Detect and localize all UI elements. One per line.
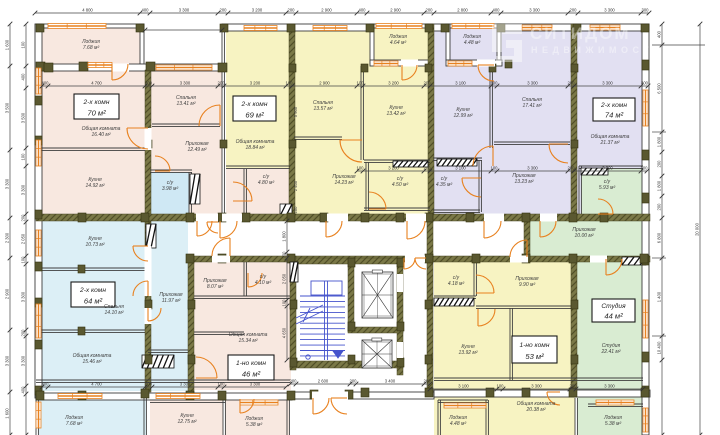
- svg-text:2-х комн: 2-х комн: [600, 102, 627, 109]
- svg-text:10.00 м²: 10.00 м²: [575, 233, 594, 239]
- svg-text:3 300: 3 300: [602, 165, 613, 170]
- svg-text:20.38 м²: 20.38 м²: [526, 407, 546, 413]
- svg-text:2-х комн: 2-х комн: [79, 287, 106, 294]
- svg-text:2 400: 2 400: [293, 180, 298, 191]
- svg-text:4 800: 4 800: [82, 7, 93, 12]
- svg-text:7.68 м²: 7.68 м²: [83, 45, 100, 51]
- svg-text:СИТИДОМ: СИТИДОМ: [530, 24, 631, 43]
- svg-text:3 200: 3 200: [252, 7, 263, 12]
- svg-text:100: 100: [286, 80, 294, 85]
- svg-text:2 300: 2 300: [4, 232, 9, 243]
- svg-text:14.92 м²: 14.92 м²: [86, 183, 105, 189]
- svg-text:200: 200: [20, 329, 25, 337]
- svg-text:400: 400: [20, 386, 25, 394]
- svg-text:2 600: 2 600: [318, 378, 329, 383]
- svg-text:13.41 м²: 13.41 м²: [177, 101, 196, 107]
- svg-text:400: 400: [359, 7, 367, 12]
- svg-text:3 500: 3 500: [20, 112, 25, 123]
- svg-text:200: 200: [350, 378, 358, 383]
- svg-text:16.40 м²: 16.40 м²: [92, 132, 111, 138]
- svg-text:9.90 м²: 9.90 м²: [519, 282, 536, 288]
- svg-text:200: 200: [281, 251, 286, 259]
- svg-text:400: 400: [20, 73, 25, 81]
- svg-text:3 100: 3 100: [455, 165, 466, 170]
- svg-text:3 300: 3 300: [20, 184, 25, 195]
- svg-text:44 м²: 44 м²: [604, 312, 623, 321]
- svg-text:300: 300: [641, 80, 649, 85]
- svg-text:100: 100: [20, 41, 25, 49]
- svg-text:НЕДВИЖИМОСТЬ: НЕДВИЖИМОСТЬ: [531, 45, 664, 55]
- svg-text:69 м²: 69 м²: [245, 110, 264, 119]
- svg-text:3 300: 3 300: [604, 7, 615, 12]
- svg-text:3 300: 3 300: [527, 165, 538, 170]
- svg-text:200: 200: [290, 378, 298, 383]
- svg-text:3 200: 3 200: [388, 165, 399, 170]
- svg-text:400: 400: [493, 7, 501, 12]
- svg-text:100: 100: [218, 381, 226, 386]
- svg-text:15.34 м²: 15.34 м²: [239, 338, 258, 344]
- svg-text:6 500: 6 500: [656, 83, 661, 94]
- svg-text:3 300: 3 300: [4, 178, 9, 189]
- svg-text:200: 200: [656, 160, 661, 168]
- svg-text:400: 400: [42, 381, 50, 386]
- svg-text:3 300: 3 300: [527, 80, 538, 85]
- svg-text:4.48 м²: 4.48 м²: [450, 421, 467, 427]
- svg-text:400: 400: [656, 30, 661, 38]
- svg-text:1 600: 1 600: [4, 39, 9, 50]
- svg-text:3 300: 3 300: [250, 381, 261, 386]
- svg-text:64 м²: 64 м²: [84, 296, 103, 305]
- svg-text:21.37 м²: 21.37 м²: [600, 140, 620, 146]
- svg-text:4.64 м²: 4.64 м²: [390, 40, 407, 46]
- svg-text:5.93 м²: 5.93 м²: [599, 185, 616, 191]
- svg-text:3 100: 3 100: [458, 383, 469, 388]
- svg-text:4.10 м²: 4.10 м²: [255, 280, 272, 286]
- svg-text:100: 100: [281, 299, 286, 307]
- svg-text:18.84 м²: 18.84 м²: [246, 145, 265, 151]
- svg-text:200: 200: [20, 214, 25, 222]
- svg-text:12.75 м²: 12.75 м²: [178, 419, 197, 425]
- svg-text:3 300: 3 300: [179, 7, 190, 12]
- svg-text:300: 300: [642, 7, 650, 12]
- svg-text:15.46 м²: 15.46 м²: [83, 359, 102, 365]
- svg-text:13.92 м²: 13.92 м²: [459, 350, 478, 356]
- svg-text:10.73 м²: 10.73 м²: [86, 242, 105, 248]
- svg-text:3 300: 3 300: [180, 381, 191, 386]
- svg-text:1 800: 1 800: [656, 180, 661, 191]
- svg-text:4 700: 4 700: [91, 80, 102, 85]
- svg-text:2 900: 2 900: [4, 288, 9, 299]
- svg-text:2-х комн: 2-х комн: [241, 101, 268, 108]
- svg-text:14.10 м²: 14.10 м²: [105, 310, 124, 316]
- svg-text:4.50 м²: 4.50 м²: [392, 182, 409, 188]
- svg-text:70 м²: 70 м²: [87, 108, 106, 117]
- svg-text:8.07 м²: 8.07 м²: [207, 284, 224, 290]
- svg-text:4.18 м²: 4.18 м²: [448, 281, 465, 287]
- svg-text:4.35 м²: 4.35 м²: [436, 182, 453, 188]
- svg-text:3 300: 3 300: [602, 80, 613, 85]
- svg-text:5.38 м²: 5.38 м²: [605, 421, 622, 427]
- svg-text:3 300: 3 300: [529, 7, 540, 12]
- svg-text:2-х комн: 2-х комн: [83, 99, 110, 106]
- svg-text:3 300: 3 300: [4, 355, 9, 366]
- svg-text:4 700: 4 700: [91, 381, 102, 386]
- svg-text:100: 100: [20, 153, 25, 161]
- svg-text:200: 200: [145, 381, 153, 386]
- svg-text:10 400: 10 400: [656, 341, 661, 354]
- svg-text:3 200: 3 200: [388, 80, 399, 85]
- svg-text:2 900: 2 900: [321, 7, 332, 12]
- svg-text:200: 200: [656, 203, 661, 211]
- svg-text:46 м²: 46 м²: [242, 369, 261, 378]
- svg-text:200: 200: [218, 80, 226, 85]
- svg-text:4 650: 4 650: [281, 327, 286, 338]
- svg-text:100: 100: [357, 165, 365, 170]
- svg-text:3.98 м²: 3.98 м²: [162, 186, 179, 192]
- svg-text:12.49 м²: 12.49 м²: [188, 147, 207, 153]
- svg-text:5.38 м²: 5.38 м²: [246, 422, 263, 428]
- svg-text:5 900: 5 900: [293, 106, 298, 117]
- svg-text:3 300: 3 300: [20, 355, 25, 366]
- svg-text:1 800: 1 800: [656, 136, 661, 147]
- svg-text:20 000: 20 000: [694, 222, 699, 235]
- svg-text:3 300: 3 300: [180, 80, 191, 85]
- svg-text:12.99 м²: 12.99 м²: [454, 113, 473, 119]
- svg-text:200: 200: [570, 7, 578, 12]
- svg-text:3 300: 3 300: [20, 291, 25, 302]
- svg-text:200: 200: [145, 80, 153, 85]
- svg-text:1-но комн: 1-но комн: [520, 342, 550, 349]
- svg-text:7.68 м²: 7.68 м²: [66, 421, 83, 427]
- svg-text:3 400: 3 400: [385, 378, 396, 383]
- svg-text:2 900: 2 900: [319, 80, 330, 85]
- svg-text:3 500: 3 500: [4, 102, 9, 113]
- svg-text:200: 200: [426, 7, 434, 12]
- svg-text:2 800: 2 800: [457, 7, 468, 12]
- svg-text:200: 200: [424, 378, 432, 383]
- svg-text:400: 400: [142, 7, 150, 12]
- svg-text:13.42 м²: 13.42 м²: [387, 111, 406, 117]
- svg-text:22.41 м²: 22.41 м²: [601, 349, 621, 355]
- svg-text:2 900: 2 900: [390, 7, 401, 12]
- svg-text:1 800: 1 800: [281, 231, 286, 242]
- svg-text:200: 200: [293, 206, 298, 214]
- svg-text:1 600: 1 600: [4, 408, 9, 419]
- svg-text:14.23 м²: 14.23 м²: [335, 180, 354, 186]
- svg-text:100: 100: [20, 256, 25, 264]
- svg-text:3 300: 3 300: [604, 383, 615, 388]
- svg-text:200: 200: [288, 7, 296, 12]
- svg-text:13.57 м²: 13.57 м²: [314, 106, 333, 112]
- svg-text:3 200: 3 200: [250, 80, 261, 85]
- svg-text:100: 100: [491, 80, 499, 85]
- svg-text:1-но комн: 1-но комн: [236, 360, 266, 367]
- svg-text:2 050: 2 050: [281, 273, 286, 284]
- svg-text:6 800: 6 800: [656, 232, 661, 243]
- svg-text:Студия: Студия: [601, 302, 626, 310]
- svg-text:200: 200: [568, 80, 576, 85]
- svg-text:53 м²: 53 м²: [525, 352, 544, 361]
- svg-text:4.80 м²: 4.80 м²: [258, 180, 275, 186]
- svg-text:1 400: 1 400: [656, 291, 661, 302]
- svg-text:200: 200: [570, 383, 578, 388]
- svg-text:3 100: 3 100: [455, 80, 466, 85]
- svg-text:200: 200: [424, 165, 432, 170]
- svg-text:200: 200: [568, 165, 576, 170]
- svg-text:74 м²: 74 м²: [605, 111, 624, 120]
- svg-text:300: 300: [641, 165, 649, 170]
- svg-text:100: 100: [357, 80, 365, 85]
- svg-text:200: 200: [220, 7, 228, 12]
- svg-text:400: 400: [42, 80, 50, 85]
- svg-text:100: 100: [491, 165, 499, 170]
- svg-text:17.41 м²: 17.41 м²: [523, 103, 542, 109]
- svg-text:11.97 м²: 11.97 м²: [162, 298, 181, 304]
- svg-text:100: 100: [497, 383, 505, 388]
- svg-text:3 300: 3 300: [531, 383, 542, 388]
- svg-text:13.23 м²: 13.23 м²: [515, 179, 534, 185]
- svg-text:200: 200: [424, 80, 432, 85]
- svg-text:2 050: 2 050: [20, 233, 25, 244]
- svg-text:4.48 м²: 4.48 м²: [464, 40, 481, 46]
